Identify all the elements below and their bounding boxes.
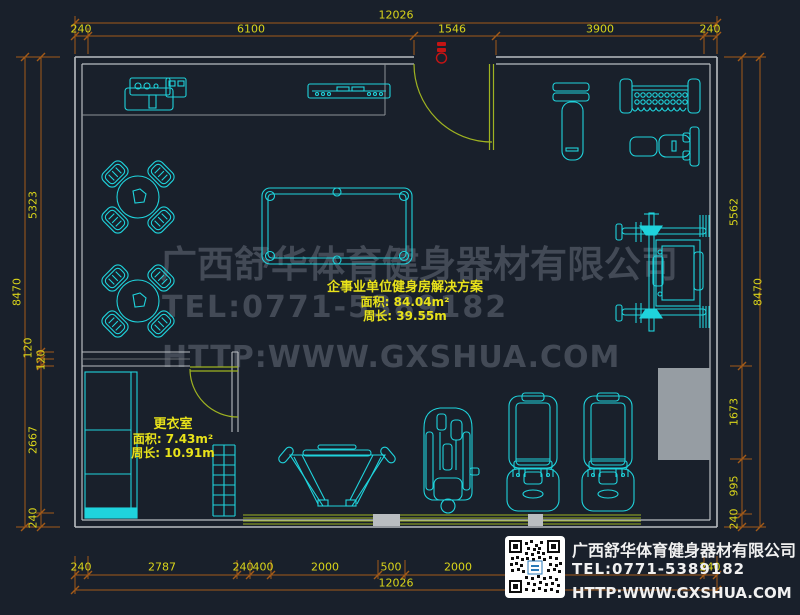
changing-room-area: 面积: 7.43m² (131, 432, 214, 446)
dim-left-5: 240 (28, 508, 39, 529)
dim-bottom-6: 500 (381, 562, 402, 573)
dim-left-2: 120 (23, 338, 34, 359)
dim-right-2: 1673 (729, 398, 740, 426)
upright-machine (553, 83, 589, 160)
dim-bottom-1: 240 (71, 562, 92, 573)
wall-bench (308, 84, 390, 98)
dumbbell-rack (620, 79, 700, 113)
plan-area: 面积: 84.04m² (327, 295, 483, 309)
changing-room-label: 更衣室 面积: 7.43m² 周长: 10.91m (131, 418, 214, 460)
dim-top-2: 6100 (237, 24, 265, 35)
stepper-machine (424, 408, 479, 513)
treadmill-left (507, 393, 559, 511)
dim-top-overall: 12026 (379, 10, 414, 21)
dim-left-overall: 8470 (12, 278, 23, 306)
barbell-rack-station (616, 213, 709, 331)
power-trainer (277, 445, 397, 506)
changing-room-title: 更衣室 (131, 418, 214, 432)
dim-right-3: 995 (729, 476, 740, 497)
contact-tel: TEL:0771-5389182 (572, 560, 745, 578)
dim-top-3: 1546 (438, 24, 466, 35)
reception-partition-wall (82, 64, 385, 115)
dim-bottom-4: 400 (253, 562, 274, 573)
locker-cabinet (85, 372, 137, 518)
dim-bottom-3: 240 (233, 562, 254, 573)
round-table-lower (99, 262, 176, 339)
dim-right-1: 5562 (729, 198, 740, 226)
plan-solution-label: 企事业单位健身房解决方案 面积: 84.04m² 周长: 39.55m (327, 281, 483, 323)
qr-code-icon (505, 536, 565, 598)
dim-left-3: 120 (36, 350, 47, 371)
window-mullion (373, 514, 400, 526)
dim-bottom-5: 2000 (311, 562, 339, 573)
changing-room-perimeter: 周长: 10.91m (131, 446, 214, 460)
dim-top-5: 240 (700, 24, 721, 35)
plan-title: 企事业单位健身房解决方案 (327, 281, 483, 295)
window-mullion (528, 514, 543, 526)
billiard-table (262, 188, 412, 264)
plan-perimeter: 周长: 39.55m (327, 309, 483, 323)
shelf-rack (213, 445, 235, 516)
dim-bottom-overall: 12026 (379, 578, 414, 589)
solid-wall-block (658, 368, 710, 460)
dim-top-1: 240 (71, 24, 92, 35)
cad-floor-plan: 广西舒华体育健身器材有限公司 TEL:0771-5389182 HTTP:WWW… (0, 0, 800, 615)
reception-desk (125, 78, 186, 110)
dim-top-4: 3900 (586, 24, 614, 35)
round-table-upper (99, 158, 176, 235)
contact-card: 广西舒华体育健身器材有限公司 TEL:0771-5389182 HTTP:WWW… (502, 532, 800, 610)
dim-left-1: 5323 (28, 191, 39, 219)
changing-room-door (190, 367, 238, 417)
dim-right-overall: 8470 (753, 278, 764, 306)
contact-company: 广西舒华体育健身器材有限公司 (572, 537, 796, 561)
entry-marker-icon (437, 42, 447, 63)
dim-bottom-2: 2787 (148, 562, 176, 573)
dim-left-4: 2667 (28, 426, 39, 454)
contact-url: HTTP:WWW.GXSHUA.COM (572, 584, 792, 602)
dim-right-4: 240 (729, 509, 740, 530)
dim-bottom-7: 2000 (444, 562, 472, 573)
adjustable-bench (630, 127, 699, 166)
treadmill-right (582, 393, 634, 511)
entry-door (414, 64, 494, 150)
